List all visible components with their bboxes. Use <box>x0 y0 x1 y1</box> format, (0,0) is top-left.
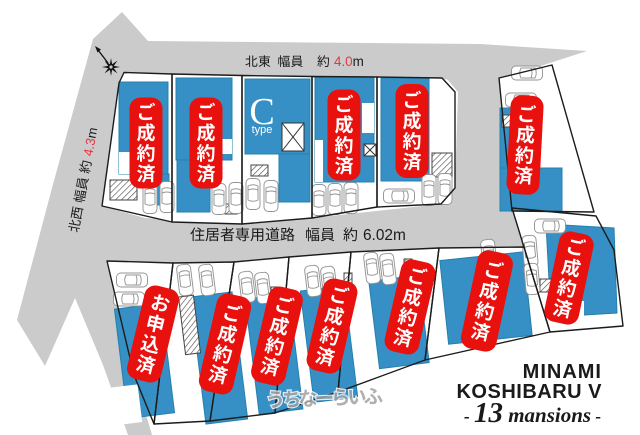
svg-text:6.02m: 6.02m <box>363 227 406 244</box>
svg-text:MINAMI: MINAMI <box>523 361 602 383</box>
svg-text:4.0m: 4.0m <box>334 54 364 69</box>
svg-text:type: type <box>252 124 273 136</box>
